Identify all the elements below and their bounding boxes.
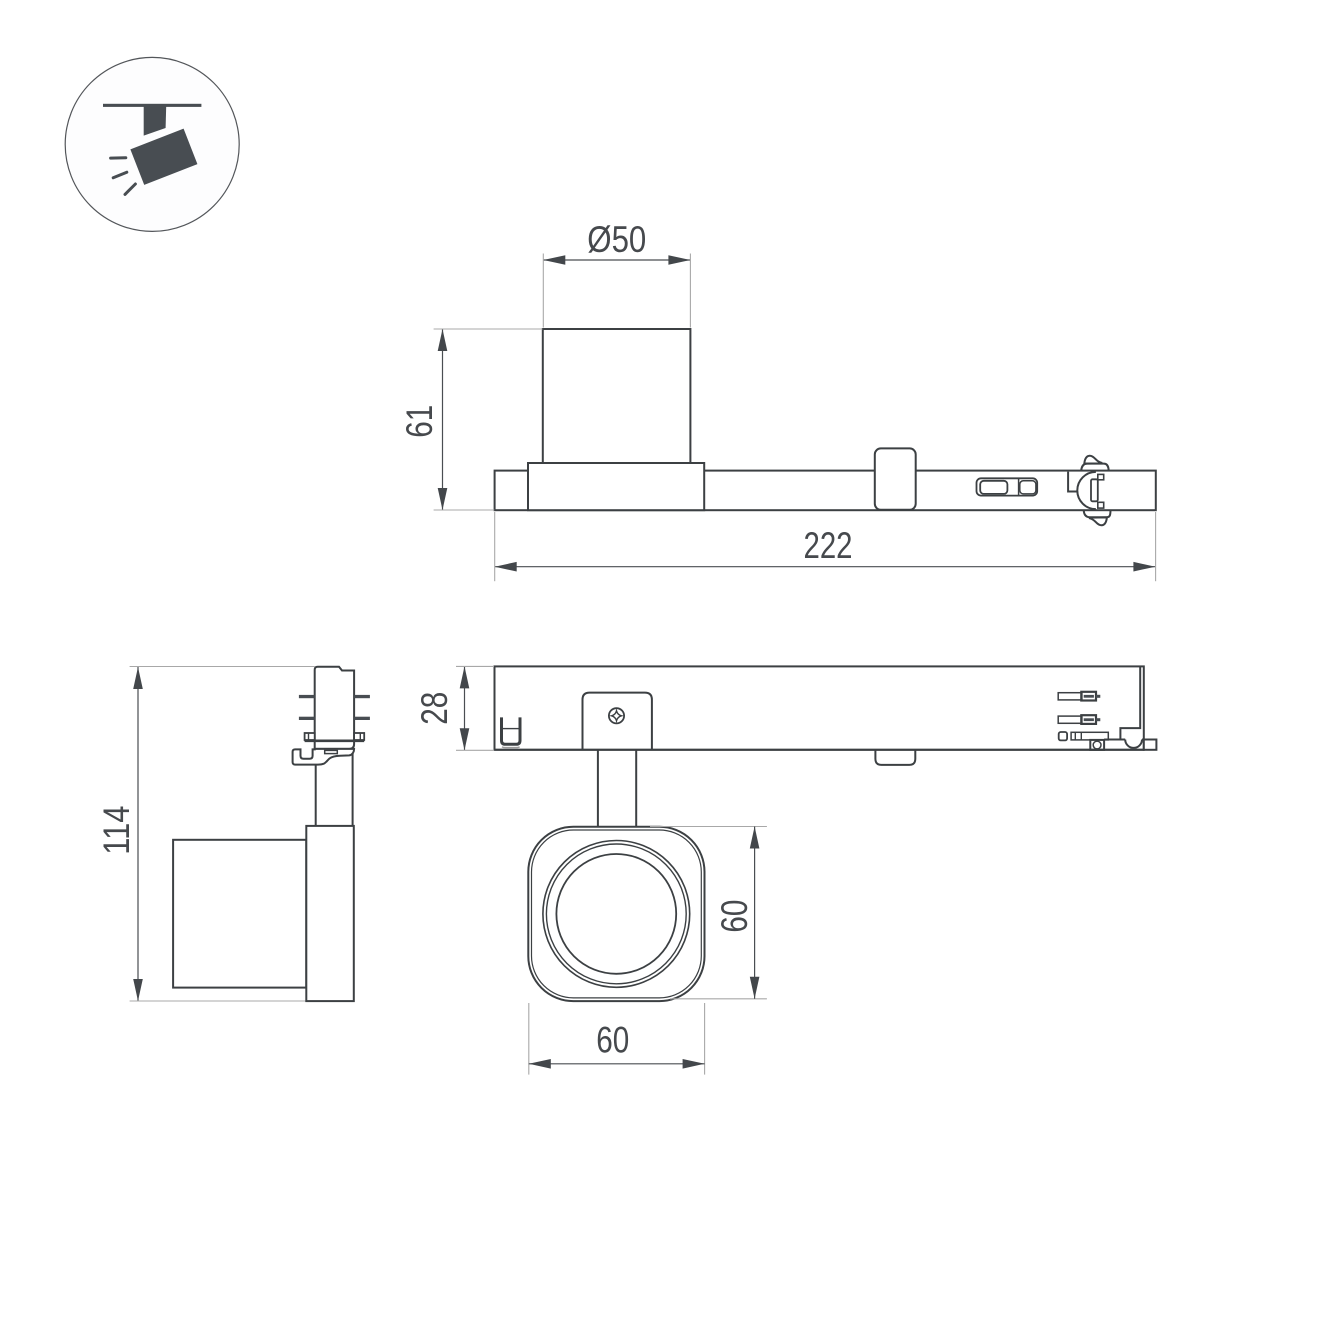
svg-text:61: 61: [399, 405, 440, 438]
svg-text:222: 222: [804, 525, 853, 566]
svg-text:60: 60: [714, 900, 755, 933]
svg-text:60: 60: [596, 1020, 629, 1061]
svg-text:28: 28: [414, 692, 455, 725]
svg-text:114: 114: [96, 806, 137, 855]
svg-text:Ø50: Ø50: [587, 219, 646, 260]
